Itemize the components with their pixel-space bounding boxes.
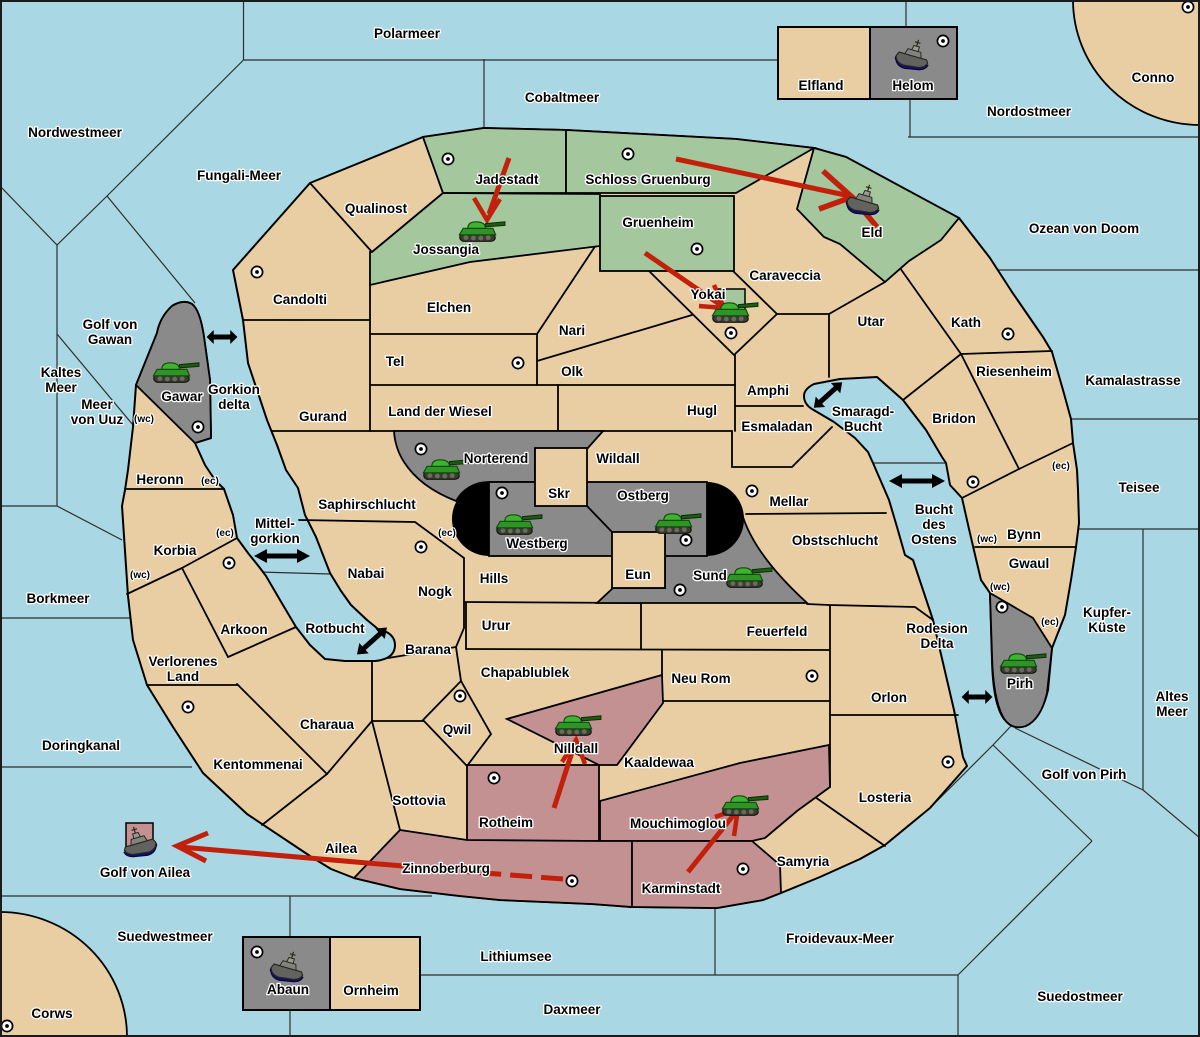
- svg-text:Urur: Urur: [482, 618, 511, 633]
- svg-text:Nabai: Nabai: [348, 566, 385, 581]
- svg-text:Suedwestmeer: Suedwestmeer: [117, 929, 213, 944]
- svg-text:Schloss Gruenburg: Schloss Gruenburg: [585, 172, 710, 187]
- svg-text:Cobaltmeer: Cobaltmeer: [525, 90, 600, 105]
- svg-text:Jadestadt: Jadestadt: [475, 172, 539, 187]
- svg-text:Gorkion: Gorkion: [208, 382, 260, 397]
- svg-text:Saphirschlucht: Saphirschlucht: [318, 497, 416, 512]
- svg-text:Arkoon: Arkoon: [220, 622, 267, 637]
- svg-text:Gawan: Gawan: [88, 332, 132, 347]
- svg-text:Yokai: Yokai: [690, 287, 725, 302]
- svg-text:Heronn: Heronn: [136, 472, 183, 487]
- svg-text:Helom: Helom: [892, 78, 933, 93]
- svg-text:Nari: Nari: [559, 323, 585, 338]
- svg-text:Ailea: Ailea: [325, 841, 358, 856]
- svg-text:Corws: Corws: [31, 1006, 72, 1021]
- svg-text:gorkion: gorkion: [250, 531, 300, 546]
- svg-text:Mellar: Mellar: [769, 494, 809, 509]
- svg-text:Kentommenai: Kentommenai: [213, 757, 302, 772]
- svg-text:(wc): (wc): [134, 414, 154, 425]
- svg-text:Rotbucht: Rotbucht: [305, 621, 365, 636]
- svg-text:Riesenheim: Riesenheim: [976, 364, 1052, 379]
- svg-text:(wc): (wc): [130, 570, 150, 581]
- svg-text:Caraveccia: Caraveccia: [749, 268, 821, 283]
- svg-text:Korbia: Korbia: [154, 543, 197, 558]
- svg-text:Nordostmeer: Nordostmeer: [987, 104, 1072, 119]
- svg-text:Eld: Eld: [861, 225, 882, 240]
- svg-text:Rodesion: Rodesion: [906, 621, 968, 636]
- svg-text:Obstschlucht: Obstschlucht: [792, 533, 879, 548]
- svg-text:Bridon: Bridon: [932, 411, 976, 426]
- svg-text:von Uuz: von Uuz: [71, 412, 124, 427]
- svg-text:Westberg: Westberg: [506, 536, 567, 551]
- svg-text:Nilldall: Nilldall: [554, 741, 598, 756]
- svg-text:Elchen: Elchen: [427, 300, 471, 315]
- svg-text:Olk: Olk: [561, 364, 583, 379]
- svg-text:Eun: Eun: [625, 567, 651, 582]
- svg-text:Kaaldewaa: Kaaldewaa: [624, 755, 694, 770]
- svg-text:(ec): (ec): [216, 528, 234, 539]
- svg-text:Ostberg: Ostberg: [617, 488, 669, 503]
- svg-text:Esmaladan: Esmaladan: [741, 419, 812, 434]
- svg-text:Gwaul: Gwaul: [1009, 556, 1050, 571]
- svg-text:Chapablublek: Chapablublek: [481, 665, 570, 680]
- svg-text:Hugl: Hugl: [687, 403, 717, 418]
- svg-text:Wildall: Wildall: [596, 451, 639, 466]
- svg-text:Bucht: Bucht: [844, 419, 883, 434]
- svg-text:Suedostmeer: Suedostmeer: [1037, 989, 1123, 1004]
- svg-text:delta: delta: [218, 397, 250, 412]
- svg-text:Sund: Sund: [693, 568, 727, 583]
- svg-text:Polarmeer: Polarmeer: [374, 26, 441, 41]
- svg-text:Charaua: Charaua: [300, 717, 355, 732]
- svg-text:Rotheim: Rotheim: [479, 815, 533, 830]
- svg-text:Qualinost: Qualinost: [345, 201, 408, 216]
- svg-text:Bucht: Bucht: [915, 502, 954, 517]
- svg-text:Zinnoberburg: Zinnoberburg: [402, 861, 490, 876]
- svg-text:Bynn: Bynn: [1007, 527, 1041, 542]
- svg-text:Golf von Pirh: Golf von Pirh: [1042, 767, 1127, 782]
- svg-text:Kath: Kath: [951, 315, 981, 330]
- svg-text:Conno: Conno: [1132, 70, 1175, 85]
- svg-text:Ornheim: Ornheim: [343, 983, 399, 998]
- svg-text:Golf von Ailea: Golf von Ailea: [100, 865, 191, 880]
- svg-text:Kamalastrasse: Kamalastrasse: [1085, 373, 1181, 388]
- svg-text:Land: Land: [167, 669, 199, 684]
- svg-text:Gruenheim: Gruenheim: [622, 215, 693, 230]
- svg-text:Ozean von Doom: Ozean von Doom: [1029, 221, 1139, 236]
- svg-text:Hills: Hills: [480, 571, 509, 586]
- svg-text:Sottovia: Sottovia: [392, 793, 446, 808]
- svg-text:Norterend: Norterend: [464, 451, 529, 466]
- svg-text:(ec): (ec): [1052, 461, 1070, 472]
- svg-text:Doringkanal: Doringkanal: [42, 738, 120, 753]
- svg-text:Kupfer-: Kupfer-: [1083, 605, 1131, 620]
- svg-text:Elfland: Elfland: [798, 78, 843, 93]
- svg-text:Golf von: Golf von: [83, 317, 138, 332]
- svg-text:Daxmeer: Daxmeer: [543, 1002, 601, 1017]
- svg-text:Smaragd-: Smaragd-: [832, 404, 894, 419]
- svg-text:Orlon: Orlon: [871, 690, 907, 705]
- svg-text:Barana: Barana: [405, 642, 451, 657]
- svg-text:Candolti: Candolti: [273, 292, 327, 307]
- svg-text:des: des: [922, 517, 945, 532]
- svg-text:Gurand: Gurand: [299, 409, 347, 424]
- svg-text:Meer: Meer: [81, 397, 113, 412]
- svg-text:(ec): (ec): [201, 476, 219, 487]
- svg-text:Verlorenes: Verlorenes: [148, 654, 217, 669]
- svg-text:Feuerfeld: Feuerfeld: [747, 624, 808, 639]
- svg-text:Gawar: Gawar: [161, 389, 203, 404]
- svg-text:Mouchimoglou: Mouchimoglou: [630, 816, 726, 831]
- svg-text:(wc): (wc): [977, 534, 997, 545]
- svg-text:Skr: Skr: [548, 486, 571, 501]
- svg-text:(wc): (wc): [990, 582, 1010, 593]
- svg-text:Pirh: Pirh: [1007, 676, 1033, 691]
- svg-text:Utar: Utar: [857, 314, 885, 329]
- svg-text:Neu Rom: Neu Rom: [671, 671, 730, 686]
- svg-text:Mittel-: Mittel-: [255, 516, 295, 531]
- svg-text:Froidevaux-Meer: Froidevaux-Meer: [786, 931, 895, 946]
- svg-text:(ec): (ec): [1041, 617, 1059, 628]
- svg-text:Lithiumsee: Lithiumsee: [480, 949, 552, 964]
- svg-text:(ec): (ec): [438, 528, 456, 539]
- svg-text:Amphi: Amphi: [747, 383, 789, 398]
- svg-text:Tel: Tel: [386, 354, 405, 369]
- svg-text:Teisee: Teisee: [1118, 480, 1160, 495]
- svg-text:Qwil: Qwil: [443, 722, 472, 737]
- svg-text:Nordwestmeer: Nordwestmeer: [28, 125, 123, 140]
- svg-text:Jossangia: Jossangia: [413, 242, 480, 257]
- svg-text:Meer: Meer: [1156, 704, 1188, 719]
- svg-text:Samyria: Samyria: [777, 854, 830, 869]
- svg-text:Karminstadt: Karminstadt: [642, 881, 721, 896]
- svg-text:Meer: Meer: [45, 380, 77, 395]
- svg-text:Borkmeer: Borkmeer: [26, 591, 90, 606]
- svg-text:Kaltes: Kaltes: [41, 365, 82, 380]
- svg-text:Delta: Delta: [920, 636, 954, 651]
- svg-text:Losteria: Losteria: [859, 790, 912, 805]
- svg-text:Fungali-Meer: Fungali-Meer: [197, 168, 282, 183]
- svg-text:Land der Wiesel: Land der Wiesel: [388, 404, 491, 419]
- svg-text:Ostens: Ostens: [911, 532, 957, 547]
- svg-text:Abaun: Abaun: [267, 982, 309, 997]
- svg-text:Altes: Altes: [1155, 689, 1188, 704]
- svg-text:Küste: Küste: [1088, 620, 1126, 635]
- svg-text:Nogk: Nogk: [418, 584, 452, 599]
